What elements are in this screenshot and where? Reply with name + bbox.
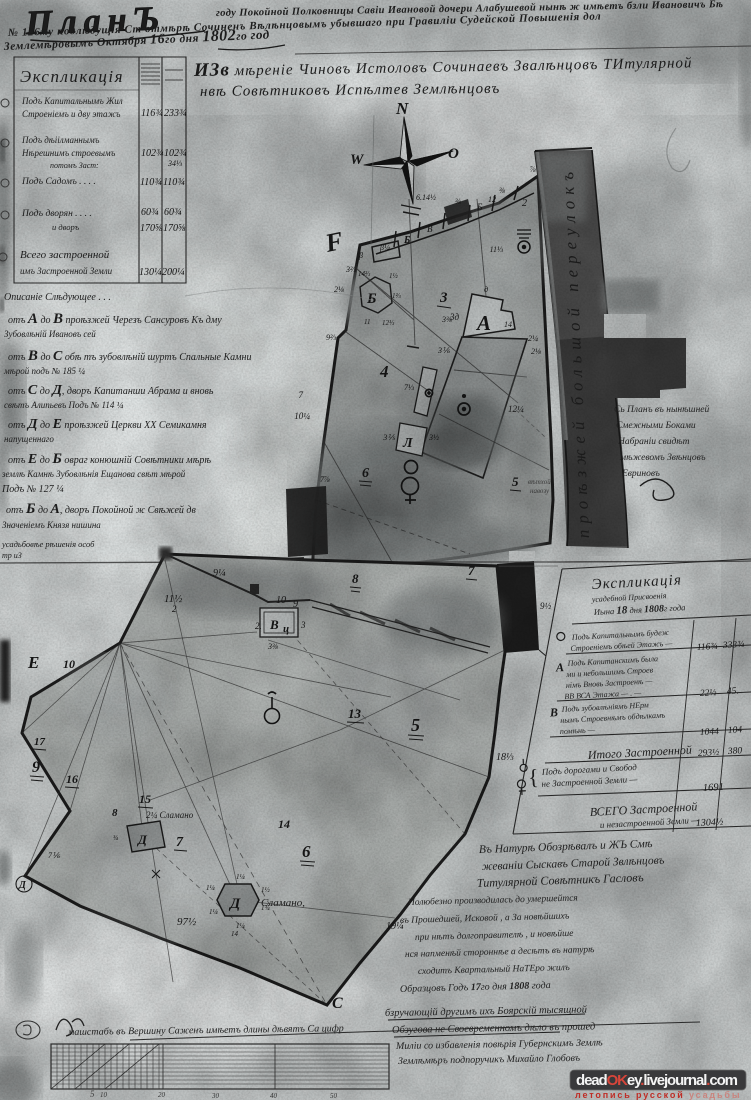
svg-text:мѣжевомъ Звѣнцовъ: мѣжевомъ Звѣнцовъ (619, 453, 706, 463)
svg-text:А: А (554, 660, 564, 674)
svg-text:1044: 1044 (700, 727, 720, 738)
svg-text:333¾: 333¾ (722, 639, 745, 651)
svg-text:5: 5 (90, 1089, 95, 1099)
svg-text:20: 20 (158, 1091, 166, 1099)
svg-text:40: 40 (270, 1092, 278, 1100)
svg-text:Набраніи свидѣт: Набраніи свидѣт (617, 436, 690, 447)
svg-text:В: В (548, 705, 558, 719)
svg-text:45.: 45. (727, 686, 739, 697)
svg-text:{: { (527, 764, 539, 790)
svg-text:1304½: 1304½ (696, 817, 725, 829)
svg-text:50: 50 (330, 1092, 338, 1100)
svg-text:380: 380 (727, 746, 743, 757)
svg-text:deadOKey.livejournal.com: deadOKey.livejournal.com (576, 1072, 738, 1089)
svg-text:30: 30 (211, 1092, 220, 1100)
svg-text:Смежными Боками: Смежными Боками (616, 421, 696, 431)
svg-text:104: 104 (728, 725, 743, 736)
svg-text:Евриновъ: Евриновъ (621, 469, 660, 479)
svg-text:293½: 293½ (698, 747, 720, 759)
svg-text:летопись русской усадьбы: летопись русской усадьбы (575, 1090, 741, 1100)
svg-text:18⅓: 18⅓ (496, 752, 514, 763)
svg-text:Сь Планъ въ нынѣшней: Сь Планъ въ нынѣшней (614, 404, 710, 415)
svg-text:22½: 22½ (700, 687, 717, 699)
svg-text:помѣнь —: помѣнь — (560, 725, 596, 736)
svg-text:116¾: 116¾ (697, 641, 718, 653)
svg-text:10: 10 (100, 1091, 108, 1099)
svg-text:1691: 1691 (703, 782, 725, 794)
